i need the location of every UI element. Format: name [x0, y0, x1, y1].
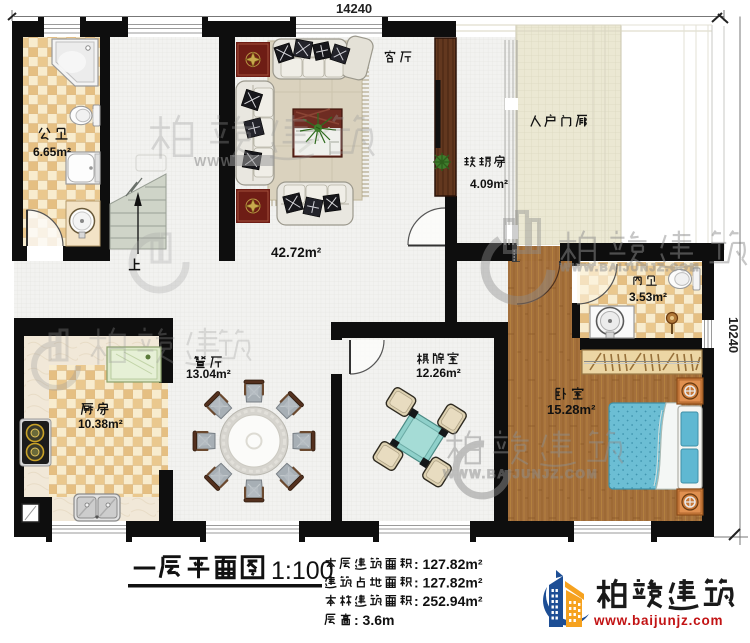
svg-text:6.65m²: 6.65m²: [33, 145, 71, 159]
svg-text:4.09m²: 4.09m²: [470, 177, 508, 191]
svg-text:WWW.BAIJUNJZ.COM: WWW.BAIJUNJZ.COM: [560, 262, 700, 274]
svg-text:14240: 14240: [336, 1, 372, 16]
svg-text:3.53m²: 3.53m²: [629, 290, 667, 304]
svg-text:15.28m²: 15.28m²: [547, 402, 596, 417]
svg-text:: 127.82m²: : 127.82m²: [414, 556, 483, 572]
svg-text:WWW.BAIJUNJZ.COM: WWW.BAIJUNJZ.COM: [443, 467, 598, 481]
svg-text:www.baijunjz.com: www.baijunjz.com: [593, 613, 723, 628]
svg-text:12.26m²: 12.26m²: [416, 366, 461, 380]
svg-text:1:100: 1:100: [271, 557, 334, 585]
svg-text:13.04m²: 13.04m²: [186, 367, 231, 381]
svg-text:: 252.94m²: : 252.94m²: [414, 593, 483, 609]
svg-text:: 3.6m: : 3.6m: [354, 612, 394, 628]
svg-text:: 127.82m²: : 127.82m²: [414, 575, 483, 591]
svg-text:10240: 10240: [726, 317, 741, 353]
svg-text:10.38m²: 10.38m²: [78, 417, 123, 431]
svg-text:42.72m²: 42.72m²: [271, 245, 322, 260]
